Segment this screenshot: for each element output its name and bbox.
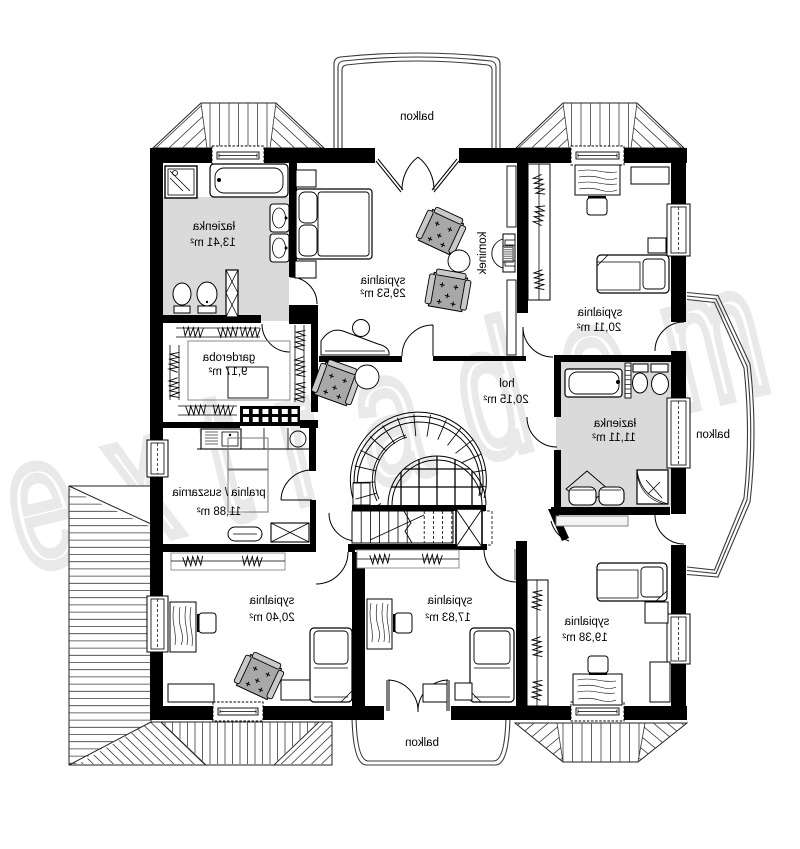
svg-text:łazienka: łazienka (192, 221, 235, 233)
svg-text:9,17 m²: 9,17 m² (208, 366, 247, 378)
svg-text:balkon: balkon (405, 737, 439, 749)
svg-text:sypialnia: sypialnia (249, 595, 294, 607)
svg-text:11,11 m²: 11,11 m² (592, 432, 636, 444)
svg-text:balkon: balkon (696, 429, 730, 441)
svg-text:19,38 m²: 19,38 m² (562, 632, 608, 644)
svg-text:20,11 m²: 20,11 m² (577, 322, 622, 334)
svg-text:29,53 m²: 29,53 m² (360, 288, 406, 300)
svg-text:20,15 m²: 20,15 m² (483, 394, 529, 406)
svg-text:kominek: kominek (477, 232, 489, 275)
svg-text:17,83 m²: 17,83 m² (425, 612, 471, 624)
svg-text:łazienka: łazienka (593, 418, 636, 430)
svg-text:sypialnia: sypialnia (577, 307, 622, 319)
svg-text:balkon: balkon (400, 111, 434, 123)
svg-text:sypialnia: sypialnia (564, 616, 609, 628)
svg-text:11,88 m²: 11,88 m² (197, 506, 242, 518)
svg-text:hol: hol (499, 378, 514, 390)
svg-text:13,41 m²: 13,41 m² (190, 237, 236, 249)
svg-text:pralnia / suszarnia: pralnia / suszarnia (172, 487, 266, 499)
svg-text:20,40 m²: 20,40 m² (249, 612, 295, 624)
svg-text:garderoba: garderoba (202, 352, 255, 364)
svg-text:sypialnia: sypialnia (427, 595, 472, 607)
svg-text:sypialnia: sypialnia (360, 275, 405, 287)
